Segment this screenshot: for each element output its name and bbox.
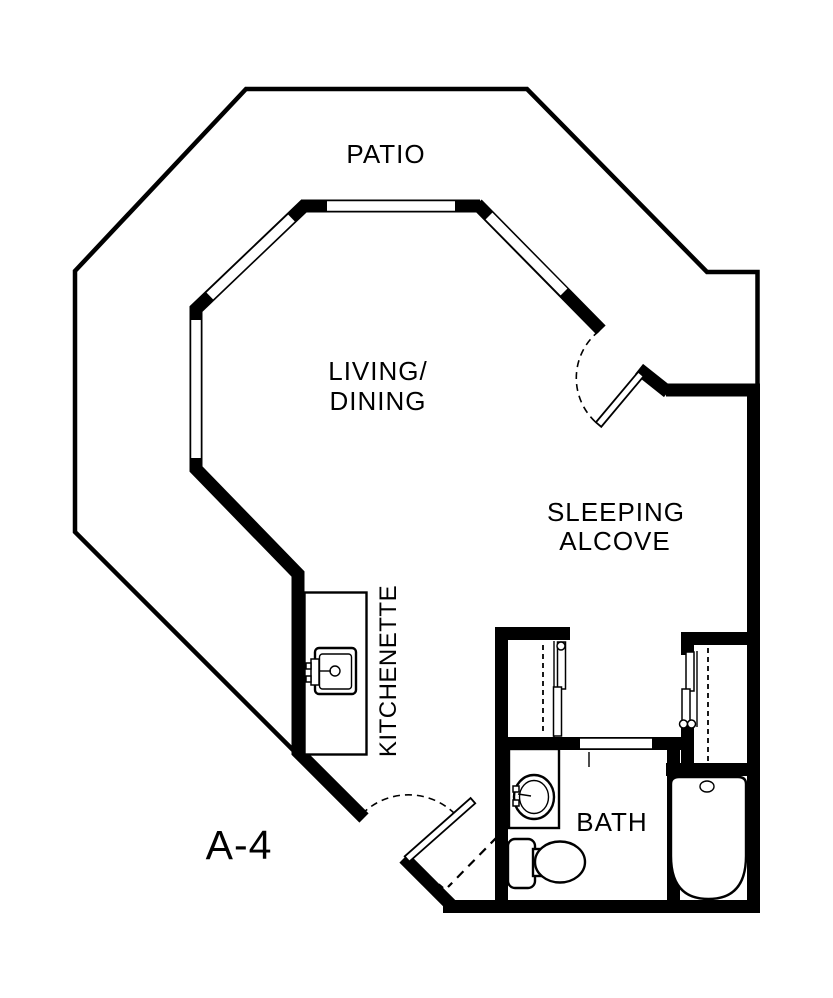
sleeping-alcove-label-line2: ALCOVE (559, 526, 671, 556)
bath-label: BATH (576, 807, 647, 837)
toilet-icon (508, 839, 585, 888)
bath-faucet-tab-2 (513, 800, 519, 806)
entry-door (362, 795, 497, 888)
windows (196, 206, 652, 744)
floor-plan-drawing: PATIO LIVING/ DINING SLEEPING ALCOVE KIT… (0, 0, 833, 998)
closet-left (543, 641, 566, 738)
labels: PATIO LIVING/ DINING SLEEPING ALCOVE KIT… (206, 139, 685, 868)
entry-door-swing-arc (362, 795, 456, 815)
entry-dashed-line-1 (448, 837, 497, 887)
bathtub-outline (671, 777, 746, 899)
closet-left-door-pull (557, 642, 565, 650)
kitchenette-counter (305, 593, 367, 755)
closet-right-door-panel-1 (686, 652, 694, 691)
kitchen-faucet-tab-2 (306, 676, 311, 682)
toilet-tank (508, 839, 535, 888)
window-northwest-diagonal (210, 218, 292, 296)
window-northeast-diagonal (489, 216, 564, 292)
living-dining-label-line1: LIVING/ (328, 356, 427, 386)
bath-faucet-tab-1 (513, 786, 519, 792)
closet-right-door-pull-1 (680, 720, 688, 728)
alcove-door-leaf (596, 372, 644, 427)
wall-alcove-door-jamb (639, 369, 668, 392)
closet-left-door-panel-2 (554, 687, 562, 736)
wall-entry-door-jamb (404, 858, 451, 905)
alcove-door (576, 331, 643, 427)
floor-plan: PATIO LIVING/ DINING SLEEPING ALCOVE KIT… (0, 0, 833, 998)
kitchen-faucet-tab-1 (306, 663, 311, 669)
entry-door-leaf (405, 798, 476, 862)
toilet-bowl (535, 842, 585, 883)
kitchenette-label: KITCHENETTE (375, 585, 402, 757)
living-dining-label-line2: DINING (330, 386, 427, 416)
bathtub-icon (671, 777, 746, 899)
patio-label: PATIO (346, 139, 425, 169)
kitchen-faucet-body (311, 659, 319, 685)
patio-boundary (75, 89, 758, 753)
bath-sink-icon (513, 775, 554, 819)
alcove-door-swing-arc (576, 331, 599, 425)
sleeping-alcove-label-line1: SLEEPING (547, 497, 685, 527)
unit-label: A-4 (206, 822, 273, 868)
closet-right-door-pull-2 (688, 720, 696, 728)
